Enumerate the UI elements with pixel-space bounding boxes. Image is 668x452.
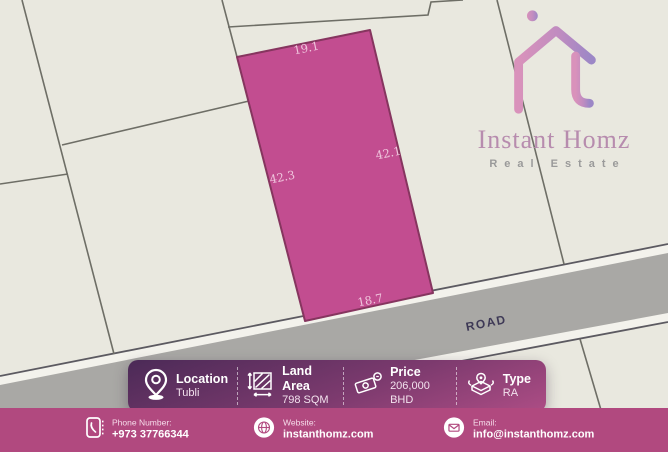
bar-item-value: 798 SQM — [282, 394, 334, 407]
contact-website: Website: instanthomz.com — [253, 417, 373, 444]
globe-icon — [253, 417, 275, 444]
location-pin-icon — [143, 368, 169, 405]
house-logo-icon — [495, 105, 613, 122]
bar-item-price: Price 206,000 BHD — [343, 367, 456, 405]
bar-item-value: RA — [503, 387, 531, 400]
brand-logo: Instant Homz Real Estate — [456, 6, 652, 170]
contact-footer: Phone Number: +973 37766344 Website: ins… — [0, 408, 668, 452]
contact-label: Email: — [473, 418, 594, 429]
bar-item-value: Tubli — [176, 387, 228, 400]
map-type-icon — [466, 370, 496, 403]
bar-item-land-area: Land Area 798 SQM — [237, 367, 343, 405]
logo-name: Instant Homz — [456, 125, 652, 155]
land-flyer: ROAD 19.1 42.3 42.1 18.7 — [0, 0, 668, 452]
bar-item-label: Type — [503, 372, 531, 387]
contact-email: Email: info@instanthomz.com — [443, 417, 594, 444]
contact-phone: Phone Number: +973 37766344 — [84, 416, 189, 445]
area-icon — [247, 370, 275, 403]
logo-tagline: Real Estate — [456, 158, 652, 170]
bar-item-label: Location — [176, 372, 228, 387]
bar-item-type: Type RA — [456, 367, 540, 405]
money-icon — [353, 370, 383, 402]
phone-icon — [84, 416, 104, 445]
bar-item-label: Price — [390, 365, 447, 380]
contact-value: +973 37766344 — [112, 428, 189, 442]
contact-value: instanthomz.com — [283, 428, 373, 442]
contact-label: Website: — [283, 418, 373, 429]
contact-label: Phone Number: — [112, 418, 189, 429]
bar-item-value: 206,000 BHD — [390, 380, 447, 406]
bar-item-label: Land Area — [282, 364, 334, 394]
highlighted-plot: 19.1 42.3 42.1 18.7 — [237, 30, 433, 321]
bar-item-location: Location Tubli — [134, 367, 237, 405]
email-icon — [443, 417, 465, 444]
contact-value: info@instanthomz.com — [473, 428, 594, 442]
info-bar: Location Tubli Land Area 798 SQM — [128, 360, 546, 412]
